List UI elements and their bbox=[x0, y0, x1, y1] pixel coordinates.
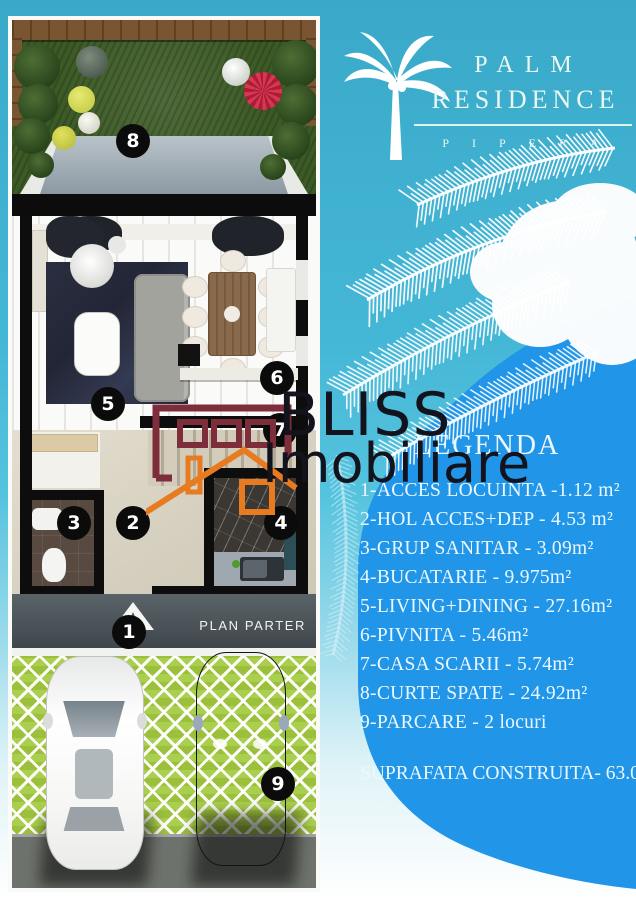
brand-divider bbox=[414, 124, 632, 126]
decor-sphere bbox=[78, 112, 100, 134]
wall bbox=[20, 430, 32, 594]
headlight-reflection bbox=[213, 739, 227, 749]
centerpiece bbox=[224, 306, 240, 322]
armchair bbox=[70, 244, 114, 288]
agency-watermark: BLISS Imobiliare bbox=[146, 392, 486, 524]
decor-sphere bbox=[68, 86, 95, 113]
bush bbox=[260, 154, 286, 180]
legend-total-area: SUPRAFATA CONSTRUITA- 63.059m² bbox=[352, 763, 634, 785]
agency-name-line2: Imobiliare bbox=[262, 438, 530, 490]
headlight-reflection bbox=[253, 739, 267, 749]
brand-text: PALM RESIDENCE PIPERA bbox=[414, 52, 632, 151]
kitchen-sink bbox=[240, 557, 284, 581]
brand-name-line2: RESIDENCE bbox=[414, 85, 632, 115]
curb bbox=[12, 648, 316, 656]
legend-item: 7-CASA SCARII - 5.74m² bbox=[360, 650, 634, 679]
bush bbox=[28, 152, 54, 178]
storage-room bbox=[24, 432, 100, 488]
real-estate-flyer: PALM RESIDENCE PIPERA LEGENDA 1-ACCES LO… bbox=[0, 0, 636, 900]
ornamental-plant bbox=[76, 46, 108, 78]
room-badge-8: 8 bbox=[116, 124, 150, 158]
rear-window bbox=[61, 807, 127, 831]
legend-item: 9-PARCARE - 2 locuri bbox=[360, 708, 634, 737]
palm-leaf-mass bbox=[470, 183, 636, 365]
wall bbox=[20, 490, 102, 500]
bush bbox=[18, 84, 58, 124]
dining-table bbox=[208, 272, 256, 356]
brand-logo: PALM RESIDENCE PIPERA bbox=[330, 20, 632, 162]
room-badge-3: 3 bbox=[57, 506, 91, 540]
legend-item: 3-GRUP SANITAR - 3.09m² bbox=[360, 534, 634, 563]
bottle bbox=[232, 560, 240, 568]
sideboard bbox=[266, 268, 296, 352]
red-plant bbox=[244, 72, 282, 110]
agency-name: BLISS Imobiliare bbox=[262, 386, 530, 490]
garden-section bbox=[12, 20, 316, 194]
white-car bbox=[46, 656, 144, 870]
decor-sphere bbox=[52, 126, 76, 150]
windshield bbox=[59, 701, 129, 737]
bush bbox=[276, 84, 316, 126]
wall bbox=[152, 586, 308, 594]
wall bbox=[20, 216, 32, 430]
legend-item: 4-BUCATARIE - 9.975m² bbox=[360, 563, 634, 592]
wardrobe bbox=[28, 434, 98, 452]
legend-item: 5-LIVING+DINING - 27.16m² bbox=[360, 592, 634, 621]
entrance-section: PLAN PARTER bbox=[12, 594, 316, 648]
bush bbox=[14, 118, 50, 154]
coffee-table bbox=[74, 312, 120, 376]
brand-location: PIPERA bbox=[414, 136, 632, 151]
side-table bbox=[108, 236, 126, 254]
dining-chair bbox=[182, 306, 208, 328]
room-badge-9: 9 bbox=[261, 767, 295, 801]
wall bbox=[12, 194, 316, 216]
room-badge-5: 5 bbox=[91, 387, 125, 421]
garden-fence bbox=[12, 20, 316, 40]
dining-chair bbox=[182, 276, 208, 298]
legend-item: 8-CURTE SPATE - 24.92m² bbox=[360, 679, 634, 708]
room-badge-1: 1 bbox=[112, 615, 146, 649]
side-mirror bbox=[43, 713, 53, 729]
side-mirror bbox=[137, 713, 147, 729]
garden-path bbox=[40, 136, 288, 194]
side-mirror bbox=[279, 715, 289, 731]
decor-sphere bbox=[222, 58, 250, 86]
plan-title: PLAN PARTER bbox=[199, 618, 306, 633]
wall bbox=[94, 490, 104, 594]
window bbox=[296, 260, 308, 300]
toilet bbox=[42, 548, 66, 582]
fireplace bbox=[178, 344, 200, 366]
window bbox=[296, 336, 308, 366]
curtain bbox=[212, 216, 284, 256]
sunroof bbox=[75, 749, 113, 799]
room-badge-2: 2 bbox=[116, 506, 150, 540]
dark-car bbox=[196, 652, 286, 866]
wall bbox=[20, 586, 100, 594]
sofa bbox=[134, 274, 190, 402]
dining-chair bbox=[220, 250, 246, 272]
brand-name-line1: PALM bbox=[414, 52, 632, 79]
side-mirror bbox=[193, 715, 203, 731]
legend-item: 6-PIVNITA - 5.46m² bbox=[360, 621, 634, 650]
